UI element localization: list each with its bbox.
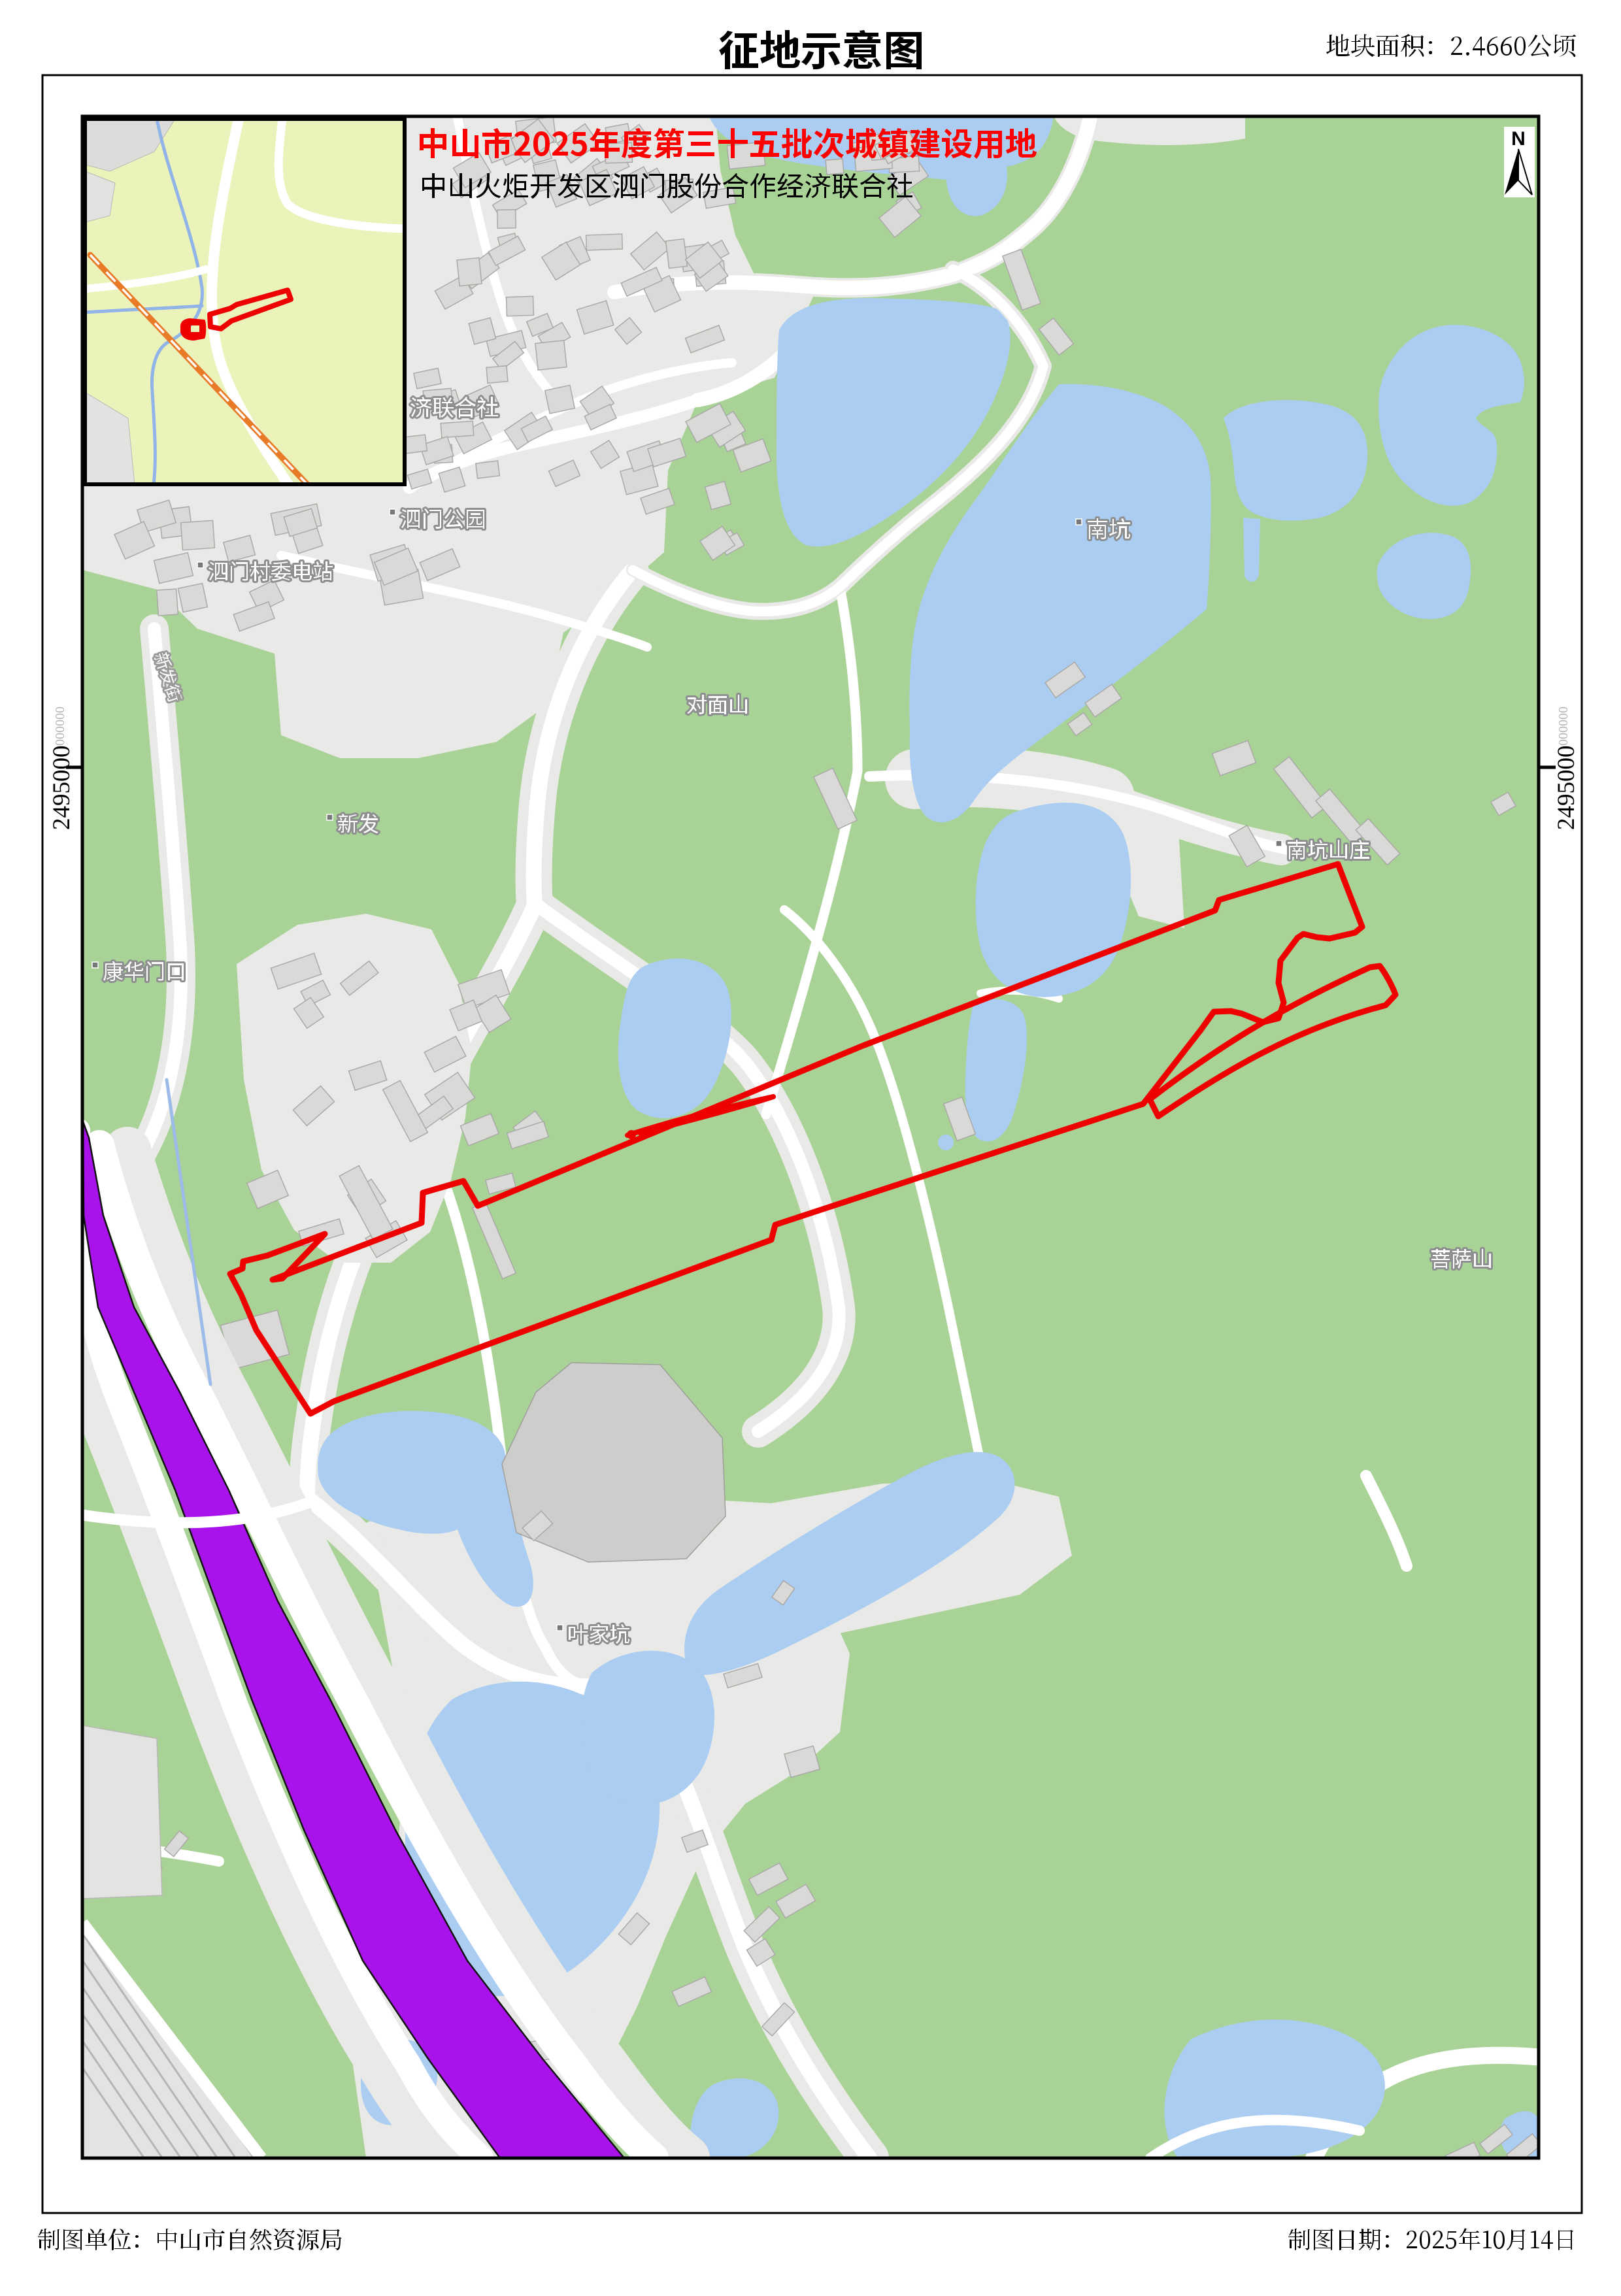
svg-text:2495000: 2495000 (48, 746, 75, 831)
svg-text:2495000: 2495000 (1553, 746, 1580, 831)
svg-text:N: N (1511, 128, 1526, 150)
svg-text:000000: 000000 (1556, 707, 1571, 746)
svg-text:000000: 000000 (53, 707, 67, 746)
